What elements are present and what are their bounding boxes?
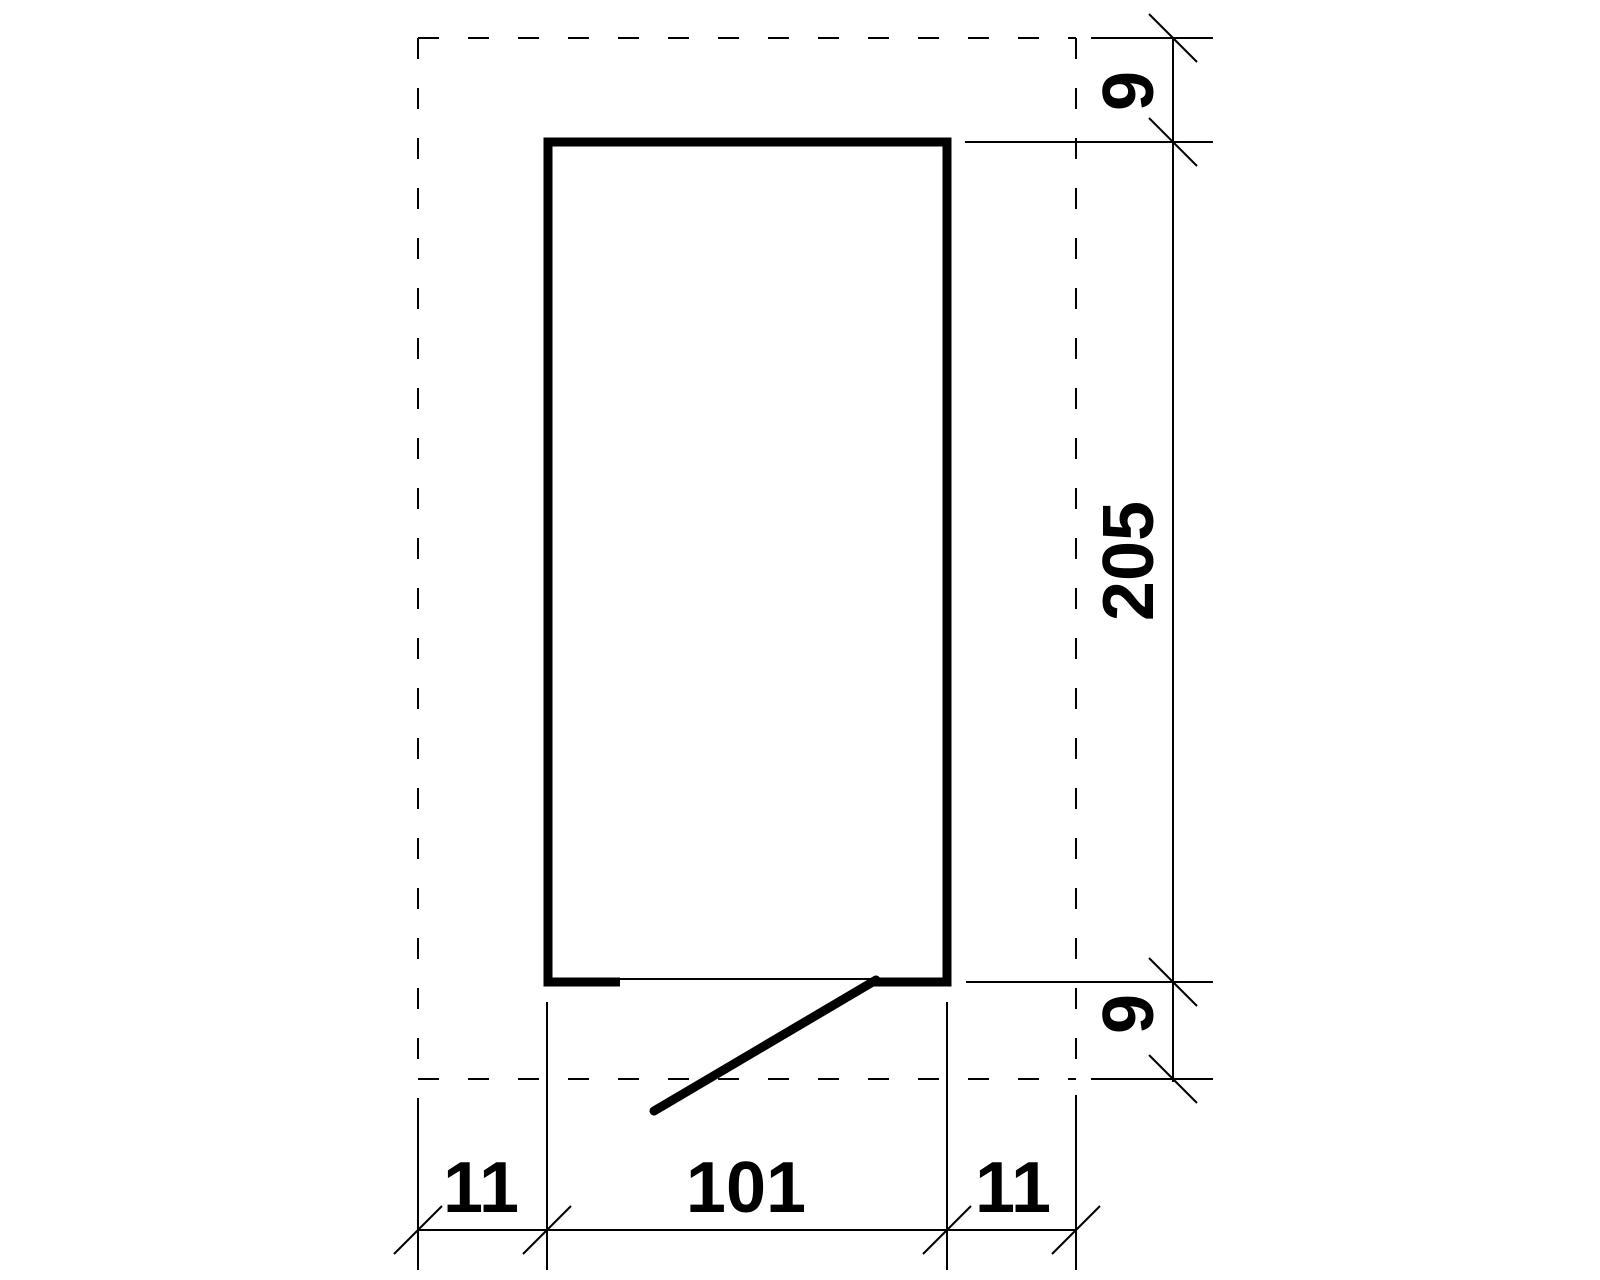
outer-boundary-dashed [418,38,1076,1079]
right-dimension-chain: 9 205 9 [965,14,1213,1103]
door-swing-leaf [654,980,876,1111]
floor-plan-drawing: 9 205 9 11 101 11 [0,0,1600,1280]
dim-label-bottom-right: 11 [975,1148,1051,1228]
dim-label-right-top: 9 [1089,71,1169,111]
dim-label-right-bottom: 9 [1089,994,1169,1034]
room-outline [544,142,952,1111]
room-walls-path [548,142,947,987]
dim-label-bottom-middle: 101 [686,1148,806,1228]
dim-label-bottom-left: 11 [443,1148,519,1228]
bottom-dimension-chain: 11 101 11 [394,1002,1100,1270]
dim-label-right-middle: 205 [1089,501,1169,621]
